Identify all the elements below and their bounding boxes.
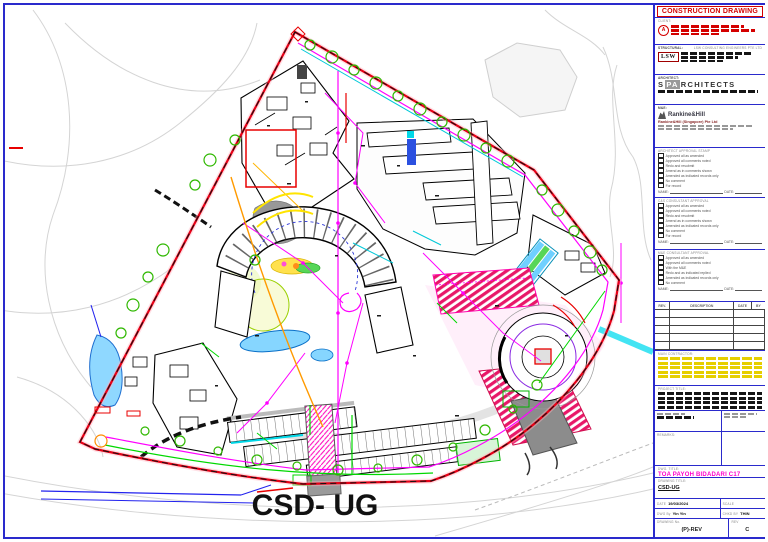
client-section: CLIENT: A xyxy=(655,18,765,45)
structural-phone-bar xyxy=(681,60,723,62)
structural-section: STRUCTURAL: LSW CONSULTING ENGINEERS PTE… xyxy=(655,45,765,75)
title-block: CONSTRUCTION DRAWING CLIENT: A STRUCTURA… xyxy=(653,5,765,537)
project-title-bars xyxy=(658,392,762,408)
lsw-logo: LSW xyxy=(658,52,679,62)
contractor-info-bars xyxy=(658,357,762,378)
approval-block-me: M&E CONSULTANT APPROVAL Approved all as … xyxy=(655,250,765,302)
contractor-text-bar xyxy=(658,357,762,360)
client-name-bar xyxy=(671,25,744,27)
project-title-section: PROJECT TITLE: xyxy=(655,386,765,411)
client-address-bar xyxy=(671,29,755,31)
building-cluster-ne xyxy=(357,119,525,255)
rev-cell xyxy=(734,318,752,326)
project-text-bar xyxy=(658,406,762,409)
site-plan-canvas: CSD- UG xyxy=(5,5,653,537)
client-logo-icon: A xyxy=(658,25,669,36)
scale-label: SCALE xyxy=(723,502,734,506)
date-col-header: DATE xyxy=(734,302,752,310)
contract-row xyxy=(655,411,765,432)
approval-block-architect: ARCHITECT APPROVAL STAMP Approved all as… xyxy=(655,148,765,198)
project-title-label: PROJECT TITLE: xyxy=(658,387,762,391)
checked-label: CHKD BY xyxy=(723,512,739,516)
rev-cell xyxy=(655,342,670,350)
approval-checklist: Approved all as amended Approved all com… xyxy=(658,255,762,285)
spa-architects-logo: SPARCHITECTS xyxy=(658,80,762,89)
remarks-label: REMARKS: xyxy=(657,433,719,437)
checkbox-icon xyxy=(658,280,664,286)
structural-label: STRUCTURAL: xyxy=(658,46,683,50)
footer-grid: DATE 19/03/2024 SCALE DWG By Yin Yin CHK… xyxy=(655,499,765,537)
checkbox-icon xyxy=(658,183,664,189)
rev-cell xyxy=(670,334,734,342)
client-label: CLIENT: xyxy=(658,19,762,23)
revision-rows xyxy=(655,310,765,350)
structural-address-bar xyxy=(681,52,752,54)
structural-firm: LSW CONSULTING ENGINEERS PTE LTD xyxy=(694,46,762,50)
rev-cell xyxy=(734,342,752,350)
contractor-text-bar xyxy=(658,371,762,374)
drawn-value: Yin Yin xyxy=(673,511,686,516)
building-cluster-sw xyxy=(125,343,237,455)
main-contractor-section: MAIN CONTRACTOR: xyxy=(655,351,765,386)
client-contact-bar xyxy=(671,33,721,35)
checkbox-icon xyxy=(658,233,664,239)
rev-cell xyxy=(655,326,670,334)
drawing-title-section: DRAWING TITLE: CSD-UG xyxy=(655,478,765,499)
drawn-label: DWG By xyxy=(657,512,671,516)
me-section: M&E: Rankine&Hill Rankine&Hill (Singapor… xyxy=(655,105,765,148)
me-address-bar xyxy=(658,125,752,127)
contractor-text-bar xyxy=(658,375,762,378)
rev-cell xyxy=(670,326,734,334)
approval-block-cs: C&S CONSULTANT APPROVAL Approved all as … xyxy=(655,198,765,250)
drawing-no-value: (P)-REV xyxy=(657,524,726,536)
dwg-title-section: DWG. TITLE: TOA PAYOH BIDADARI C17 xyxy=(655,466,765,478)
rev-cell xyxy=(670,318,734,326)
contractor-text-bar xyxy=(658,366,762,369)
checklist-item: For record xyxy=(658,233,762,238)
signature-row: NAME: DATE: xyxy=(658,190,762,194)
architect-section: ARCHITECT: SPARCHITECTS xyxy=(655,75,765,105)
construction-drawing-label: CONSTRUCTION DRAWING xyxy=(657,6,763,17)
rev-cell xyxy=(734,310,752,318)
rev-cell xyxy=(752,326,765,334)
construction-drawing-banner: CONSTRUCTION DRAWING xyxy=(655,5,765,18)
signature-row: NAME: DATE: xyxy=(658,287,762,291)
me-firm-name: Rankine&Hill (Singapore) Pte Ltd xyxy=(658,120,762,124)
rev-cell xyxy=(752,318,765,326)
rev-cell xyxy=(734,334,752,342)
project-text-bar xyxy=(658,401,762,404)
rankine-hill-logo-icon xyxy=(658,111,666,119)
me-label: M&E: xyxy=(658,106,762,110)
checklist-item: For record xyxy=(658,183,762,188)
rev-cell xyxy=(734,326,752,334)
architect-address-bar xyxy=(658,90,758,92)
drawing-sheet: CSD- UG CONSTRUCTION DRAWING CLIENT: A S… xyxy=(0,0,768,542)
rev-value: C xyxy=(731,524,763,536)
signature-row: NAME: DATE: xyxy=(658,240,762,244)
checklist-item: No comment xyxy=(658,280,762,285)
rev-col-header: REV. xyxy=(655,302,670,310)
drawing-big-label: CSD- UG xyxy=(252,489,379,522)
date-value: 19/03/2024 xyxy=(668,501,688,506)
me-contact-bar xyxy=(658,128,733,130)
remarks-section: REMARKS: xyxy=(655,432,765,466)
rankine-hill-logo-text: Rankine&Hill xyxy=(668,112,705,118)
approval-checklist: Approved all as amended Approved all com… xyxy=(658,203,762,238)
description-col-header: DESCRIPTION xyxy=(670,302,734,310)
rev-cell xyxy=(655,334,670,342)
project-text-bar xyxy=(658,392,762,395)
rev-cell xyxy=(655,310,670,318)
rev-cell xyxy=(752,334,765,342)
rev-cell xyxy=(752,342,765,350)
checked-value: THIN xyxy=(740,511,749,516)
drawing-code: CSD-UG xyxy=(658,485,680,491)
rev-cell xyxy=(655,318,670,326)
rev-cell xyxy=(670,310,734,318)
main-contractor-label: MAIN CONTRACTOR: xyxy=(658,352,762,356)
dwg-title-label: DWG. TITLE: xyxy=(658,467,762,471)
by-col-header: BY xyxy=(752,302,765,310)
rev-cell xyxy=(670,342,734,350)
structural-contact-bar xyxy=(681,56,738,58)
drawing-title-label: DRAWING TITLE: xyxy=(658,479,762,483)
revision-table: REV. DESCRIPTION DATE BY xyxy=(655,302,765,351)
rev-cell xyxy=(752,310,765,318)
contractor-text-bar xyxy=(658,362,762,365)
date-label: DATE xyxy=(657,502,666,506)
approval-checklist: Approved all as amended Approved all com… xyxy=(658,153,762,188)
project-text-bar xyxy=(658,397,762,400)
